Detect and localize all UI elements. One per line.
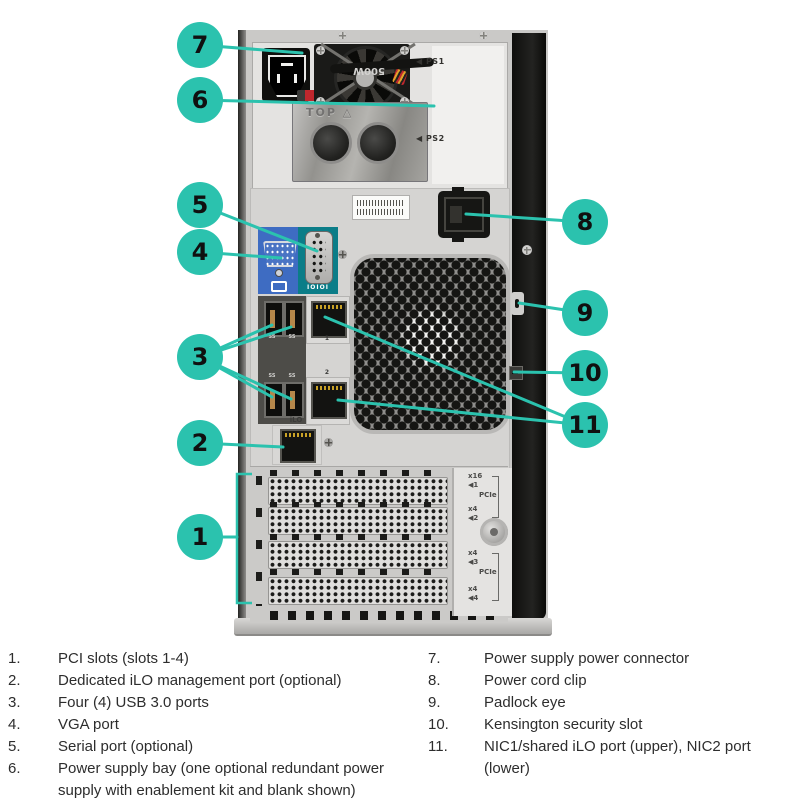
- clip-notch: [452, 237, 464, 242]
- usb-ss-icon: SS: [284, 373, 300, 379]
- screw-icon: [338, 250, 347, 259]
- legend-number: 1.: [8, 648, 58, 670]
- serial-screw-hole: [315, 233, 320, 238]
- legend-item-2: 2. Dedicated iLO management port (option…: [8, 670, 432, 692]
- legend-text: Power cord clip: [484, 670, 798, 692]
- legend-item-1: 1. PCI slots (slots 1-4): [8, 648, 432, 670]
- vent-row: [270, 569, 444, 575]
- blank-top-label: TOP △: [306, 106, 376, 119]
- legend-number: 10.: [428, 714, 484, 736]
- power-cord-clip: [438, 191, 490, 238]
- serial-icon: IOIOI: [300, 284, 336, 291]
- legend-item-9: 9. Padlock eye: [428, 692, 798, 714]
- legend-number: 8.: [428, 670, 484, 692]
- pcie-slot4-label: x4: [468, 585, 477, 593]
- inlet-pin: [277, 74, 280, 83]
- screw-icon: [400, 46, 409, 55]
- pcie-slot4-arrow: ◀4: [468, 594, 478, 602]
- legend-text: VGA port: [58, 714, 430, 736]
- pcie-slot2-arrow: ◀2: [468, 514, 478, 522]
- callout-5: 5: [177, 182, 223, 228]
- padlock-eye: [511, 292, 524, 315]
- barcode-row: [357, 209, 403, 215]
- inlet-pin: [281, 63, 293, 66]
- tower-side-panel: [512, 33, 546, 620]
- legend-text: Serial port (optional): [58, 736, 430, 758]
- legend-right-column: 7. Power supply power connector 8. Power…: [428, 648, 798, 780]
- usb3-port-3: [264, 382, 284, 418]
- legend-number: 3.: [8, 692, 58, 714]
- callout-9: 9: [562, 290, 608, 336]
- usb-ss-icon: SS: [264, 373, 280, 379]
- usb3-port-2: [284, 301, 304, 337]
- legend-number: 5.: [8, 736, 58, 758]
- dedicated-ilo-port: [280, 429, 316, 463]
- vga-screw-hole: [275, 269, 283, 277]
- callout-3: 3: [177, 334, 223, 380]
- legend-item-3: 3. Four (4) USB 3.0 ports: [8, 692, 432, 714]
- nic1-label: 1: [306, 335, 348, 342]
- screw-icon: [338, 31, 347, 40]
- callout-7: 7: [177, 22, 223, 68]
- screw-icon: [316, 46, 325, 55]
- legend-item-6: 6. Power supply bay (one optional redund…: [8, 758, 432, 800]
- pcie-slot3-label: x4: [468, 549, 477, 557]
- usb3-port-4: [284, 382, 304, 418]
- thumbscrew-icon: [480, 518, 508, 546]
- pcie-slot1-arrow: ◀1: [468, 481, 478, 489]
- blank-hole: [310, 122, 352, 164]
- legend-text: NIC1/shared iLO port (upper), NIC2 port …: [484, 736, 798, 780]
- legend-number: 9.: [428, 692, 484, 714]
- screw-icon: [522, 245, 532, 255]
- inlet-pin: [294, 74, 297, 83]
- legend-text: Padlock eye: [484, 692, 798, 714]
- legend-item-7: 7. Power supply power connector: [428, 648, 798, 670]
- callout-10: 10: [562, 350, 608, 396]
- legend-number: 4.: [8, 714, 58, 736]
- legend-item-4: 4. VGA port: [8, 714, 432, 736]
- tower-left-edge: [238, 30, 246, 622]
- pci-slot-cover-3: [268, 541, 448, 569]
- legend-item-10: 10. Kensington security slot: [428, 714, 798, 736]
- legend-text: Power supply bay (one optional redundant…: [58, 758, 430, 800]
- vga-port: [263, 241, 297, 267]
- legend-left-column: 1. PCI slots (slots 1-4) 2. Dedicated iL…: [8, 648, 432, 800]
- callout-4: 4: [177, 229, 223, 275]
- pcie-slot2-label: x4: [468, 505, 477, 513]
- legend-text: Four (4) USB 3.0 ports: [58, 692, 430, 714]
- psu-wattage-label: 500W: [352, 62, 386, 76]
- pcie-group2-label: PCIe: [479, 568, 497, 576]
- callout-1: 1: [177, 514, 223, 560]
- system-fan-grille: [350, 254, 510, 434]
- pcie-slot3-arrow: ◀3: [468, 558, 478, 566]
- service-label-barcode: [352, 195, 410, 220]
- callout-11: 11: [562, 402, 608, 448]
- callout-2: 2: [177, 420, 223, 466]
- pci-slot-cover-2: [268, 507, 448, 535]
- pci-slot-cover-4: [268, 577, 448, 605]
- usb-ss-icon: SS: [264, 334, 280, 340]
- legend-text: PCI slots (slots 1-4): [58, 648, 430, 670]
- nic2-label: 2: [306, 369, 348, 376]
- pci-retention-ticks: [256, 476, 262, 606]
- monitor-icon: [271, 281, 287, 292]
- legend-item-5: 5. Serial port (optional): [8, 736, 432, 758]
- nic2-port: [311, 382, 347, 419]
- screw-icon: [479, 31, 488, 40]
- ps1-label: ◀ PS1: [416, 57, 458, 69]
- pcie-bracket: [492, 553, 499, 601]
- kensington-security-slot: [509, 366, 523, 380]
- callout-6: 6: [177, 77, 223, 123]
- ps2-label: ◀ PS2: [416, 134, 458, 146]
- vent-row: [270, 534, 444, 540]
- barcode-row: [357, 200, 403, 206]
- pci-slot-cover-1: [268, 477, 448, 505]
- callout-8: 8: [562, 199, 608, 245]
- legend-text: Dedicated iLO management port (optional): [58, 670, 430, 692]
- nic1-shared-ilo-port: [311, 301, 347, 338]
- vent-row: [270, 470, 444, 476]
- pcie-slot1-label: x16: [468, 472, 482, 480]
- ilo-label: iLO: [276, 416, 316, 424]
- legend-text: Power supply power connector: [484, 648, 798, 670]
- legend-item-8: 8. Power cord clip: [428, 670, 798, 692]
- legend-number: 7.: [428, 648, 484, 670]
- serial-port-pins: [311, 239, 326, 274]
- legend-number: 6.: [8, 758, 58, 800]
- legend-number: 2.: [8, 670, 58, 692]
- usb3-port-1: [264, 301, 284, 337]
- server-rear-diagram: 500W ◀ PS1 TOP △ ◀ PS2 IOIOI SS SS SS SS…: [0, 0, 800, 800]
- legend-number: 11.: [428, 736, 484, 780]
- pcie-group1-label: PCIe: [479, 491, 497, 499]
- usb-ss-icon: SS: [284, 334, 300, 340]
- serial-screw-hole: [315, 275, 320, 280]
- blank-hole: [357, 122, 399, 164]
- screw-icon: [324, 438, 333, 447]
- legend-text: Kensington security slot: [484, 714, 798, 736]
- legend-item-11: 11. NIC1/shared iLO port (upper), NIC2 p…: [428, 736, 798, 780]
